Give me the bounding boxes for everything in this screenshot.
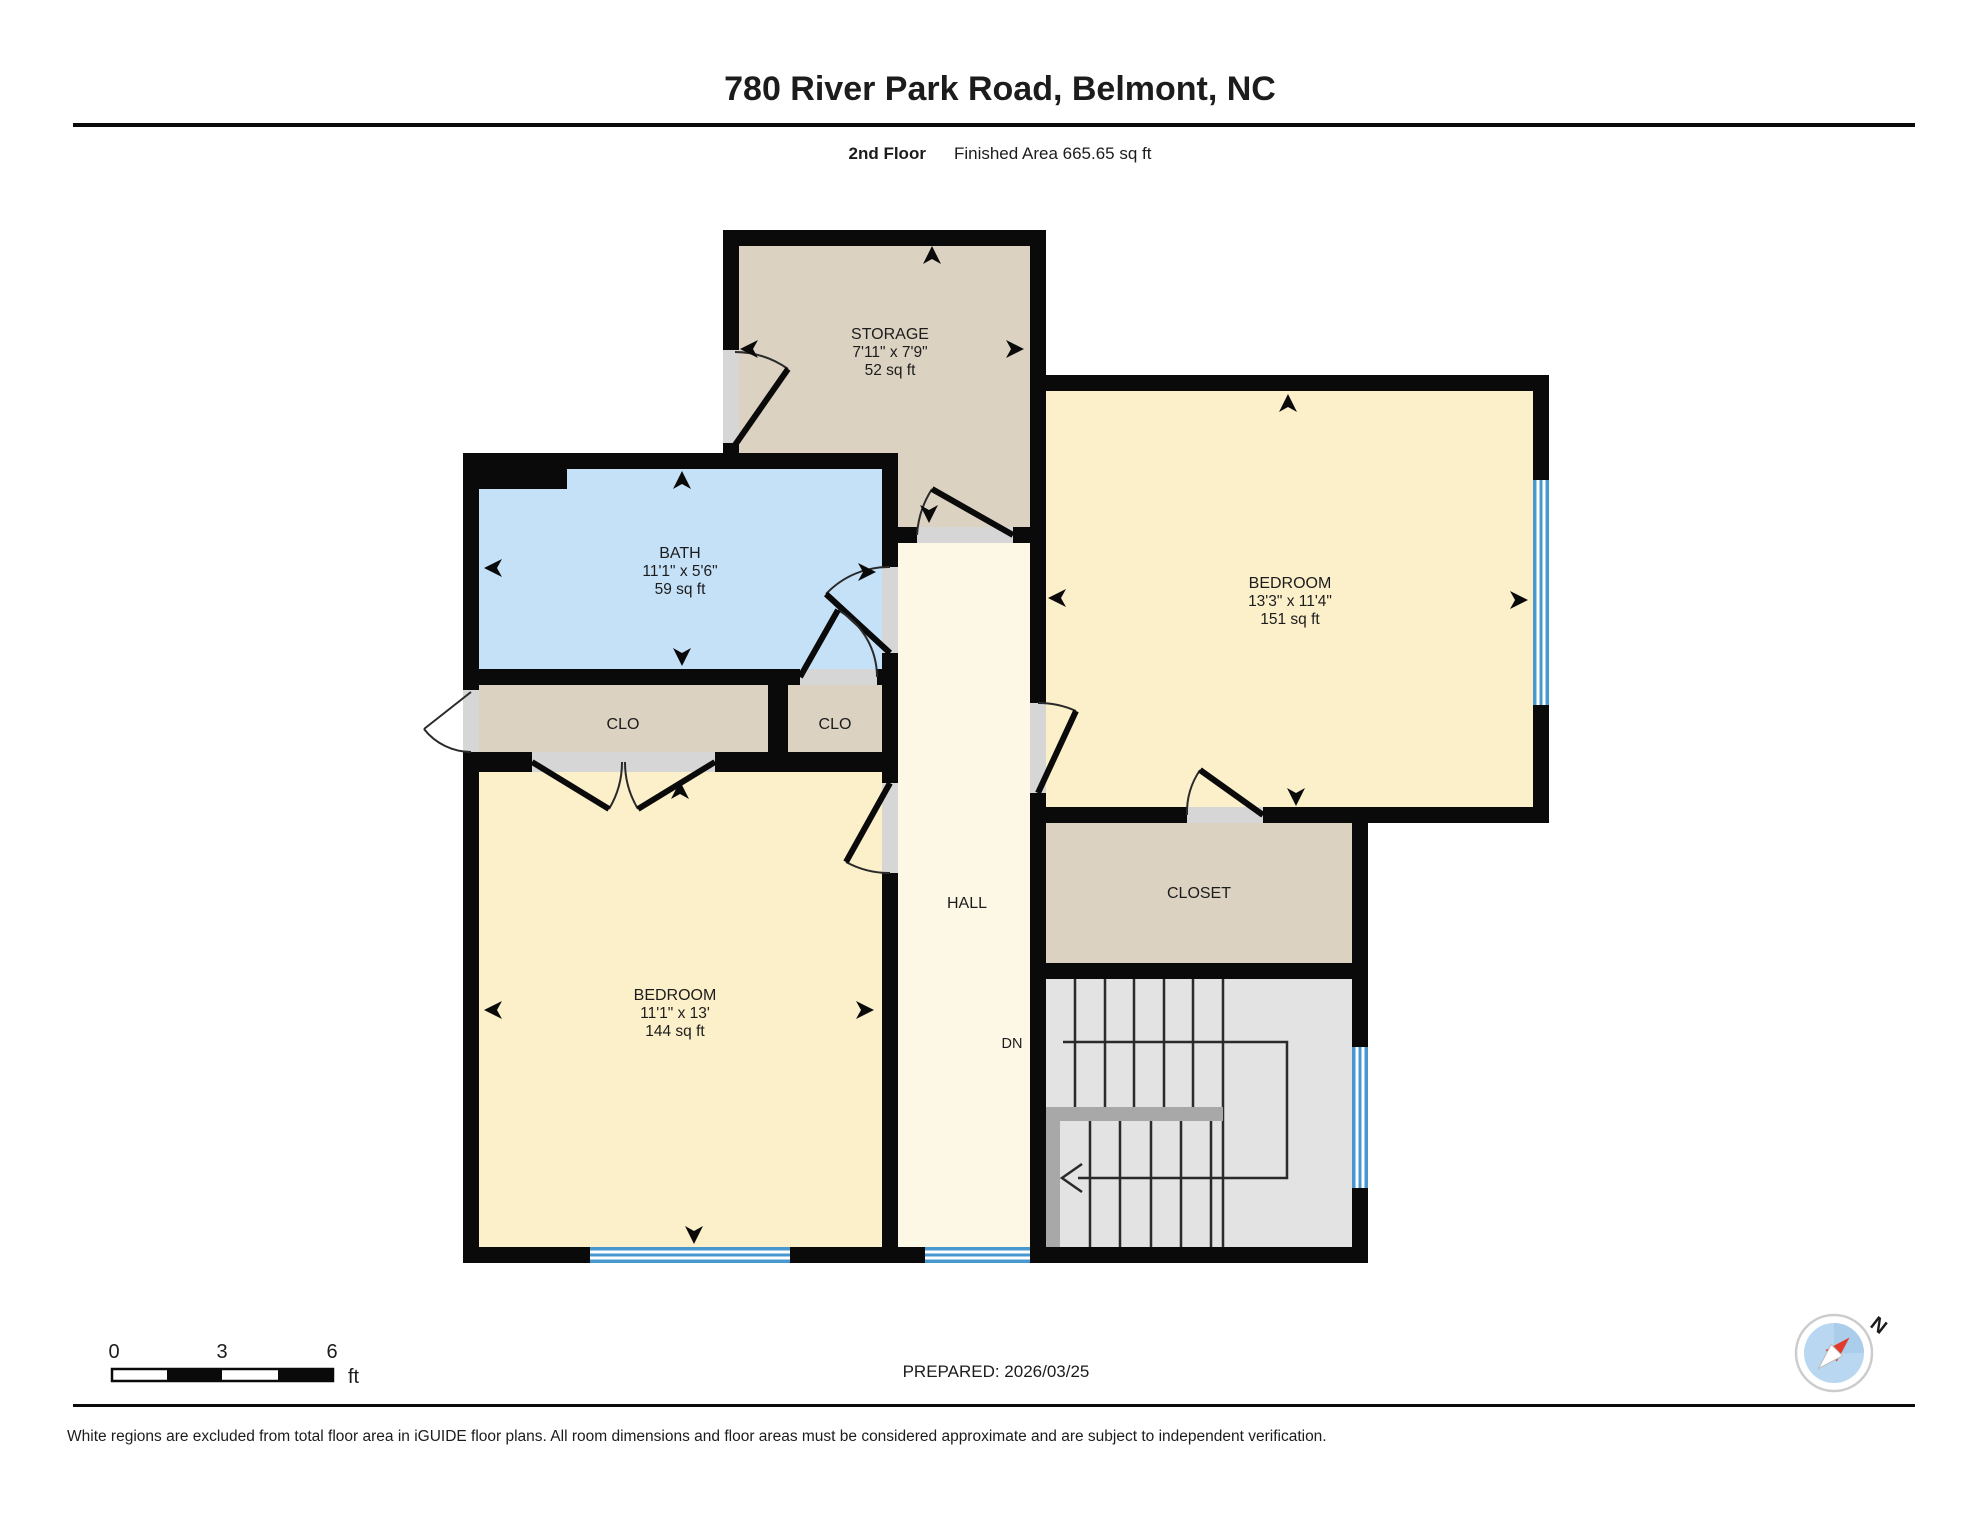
window [925, 1247, 1030, 1263]
room-label: CLOSET [1167, 885, 1231, 902]
room-label: BEDROOM [1249, 575, 1332, 592]
footer-rule [73, 1404, 1915, 1407]
stairs-dn-label: DN [1002, 1036, 1023, 1052]
room-dims: 13'3" x 11'4" [1248, 593, 1332, 610]
room-dims: 11'1" x 5'6" [642, 563, 717, 580]
disclaimer-text: White regions are excluded from total fl… [67, 1428, 1327, 1445]
window [1352, 1047, 1368, 1188]
scale-tick-label: 0 [108, 1341, 119, 1363]
room-area: 151 sq ft [1260, 611, 1320, 628]
compass-icon: N [1796, 1313, 1891, 1391]
room-label: HALL [947, 895, 987, 912]
room-area: 144 sq ft [645, 1023, 705, 1040]
room-label: CLO [607, 716, 640, 733]
room-label: BATH [659, 545, 700, 562]
room-storage [898, 453, 1030, 527]
window [1533, 480, 1549, 705]
room-label: BEDROOM [634, 987, 717, 1004]
room-dims: 7'11" x 7'9" [852, 344, 927, 361]
wall-notch [479, 469, 567, 489]
page-title: 780 River Park Road, Belmont, NC [724, 70, 1276, 108]
scale-tick-label: 3 [216, 1341, 227, 1363]
scale-tick-label: 6 [326, 1341, 337, 1363]
room-dims: 11'1" x 13' [640, 1005, 710, 1022]
scale-bar: 0 3 6 ft [108, 1341, 359, 1388]
scale-unit-label: ft [348, 1366, 360, 1388]
room-area: 52 sq ft [865, 362, 917, 379]
floor-plan-page: 780 River Park Road, Belmont, NC 2nd Flo… [0, 0, 1988, 1536]
window [590, 1247, 790, 1263]
area-label: Finished Area 665.65 sq ft [954, 144, 1152, 163]
room-label: STORAGE [851, 326, 929, 343]
floor-label: 2nd Floor [849, 144, 927, 163]
header-rule [73, 123, 1915, 127]
compass-north-label: N [1866, 1313, 1891, 1339]
room-area: 59 sq ft [655, 581, 707, 598]
subtitle: 2nd FloorFinished Area 665.65 sq ft [849, 144, 1152, 163]
prepared-date: PREPARED: 2026/03/25 [903, 1362, 1090, 1381]
room-label: CLO [819, 716, 852, 733]
floor-plan-canvas: 780 River Park Road, Belmont, NC 2nd Flo… [0, 0, 1988, 1536]
room-fills [479, 246, 1533, 1247]
